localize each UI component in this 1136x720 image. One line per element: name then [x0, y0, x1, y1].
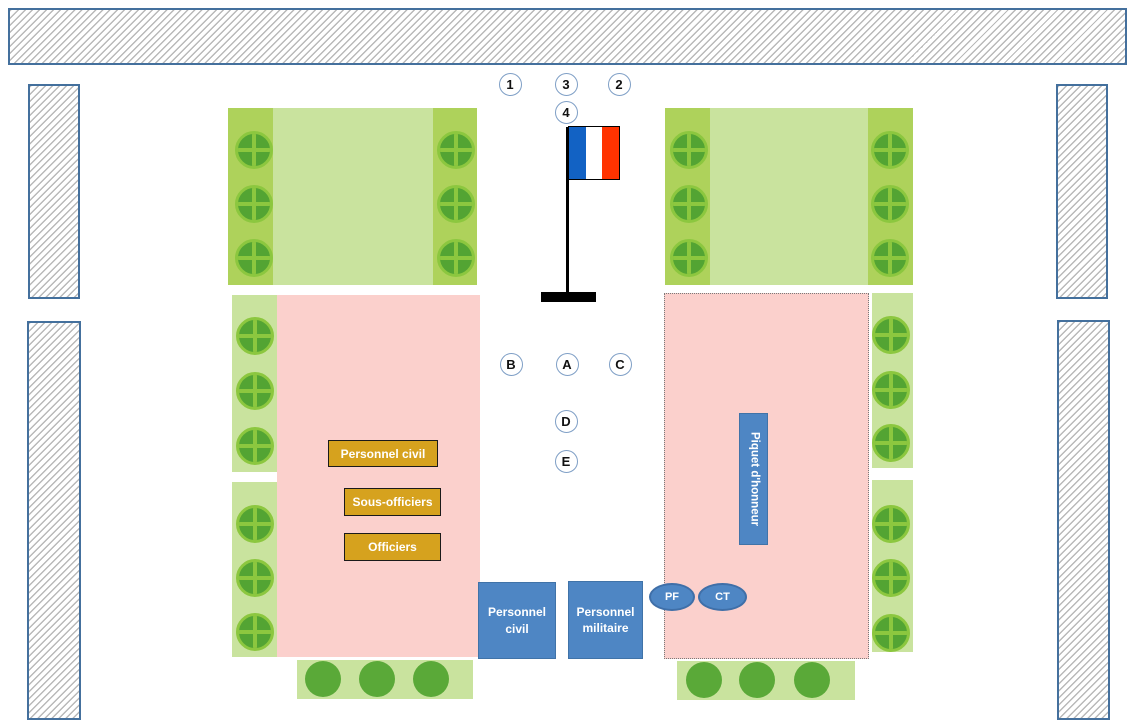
position-marker-2: 2 [608, 73, 631, 96]
position-marker-C: C [609, 353, 632, 376]
ceremony-layout-diagram: Personnel civil Sous-officiers Officiers… [0, 0, 1136, 720]
position-marker-4: 4 [555, 101, 578, 124]
position-marker-B: B [500, 353, 523, 376]
position-marker-3: 3 [555, 73, 578, 96]
position-marker-E: E [555, 450, 578, 473]
position-marker-A: A [556, 353, 579, 376]
position-marker-1: 1 [499, 73, 522, 96]
markers-layer: 1324BACDE [0, 0, 1136, 720]
position-marker-D: D [555, 410, 578, 433]
